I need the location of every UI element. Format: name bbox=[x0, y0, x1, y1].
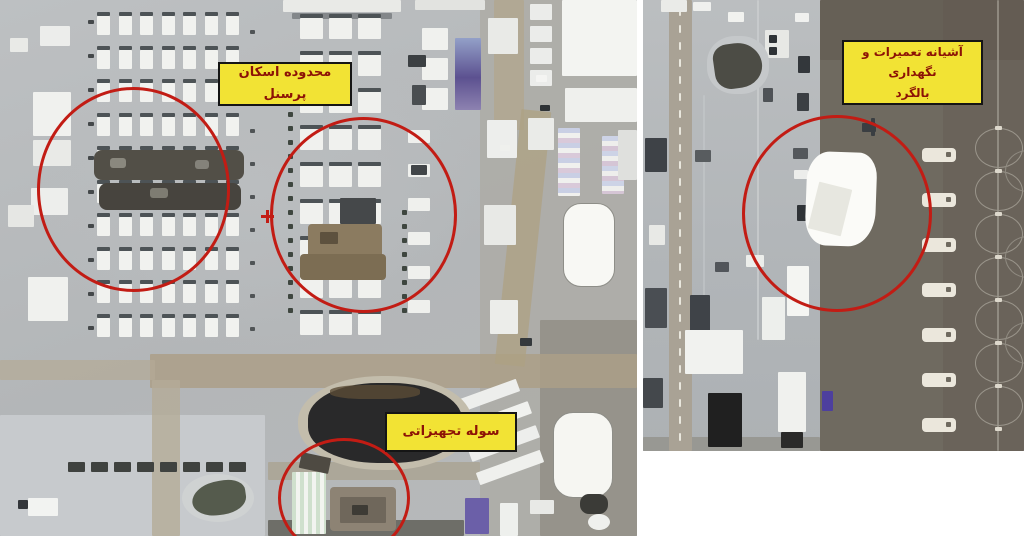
label-helicopter-hangar: آشیانه تعمیرات و نگهداری بالگرد bbox=[842, 40, 983, 105]
circle-personnel-tents bbox=[37, 87, 230, 292]
circle-equipment-shed bbox=[278, 438, 410, 536]
red-plus-mark bbox=[261, 210, 274, 223]
annotation-overlay: محدوده اسکان پرسنل سوله تجهیزاتی آشیانه … bbox=[0, 0, 1024, 536]
label-equipment-shed: سوله تجهیزاتی bbox=[385, 412, 517, 452]
circle-center-damage bbox=[270, 117, 457, 313]
annotated-satellite-collage: محدوده اسکان پرسنل سوله تجهیزاتی آشیانه … bbox=[0, 0, 1024, 536]
circle-hangar bbox=[742, 115, 932, 312]
label-personnel-area: محدوده اسکان پرسنل bbox=[218, 62, 352, 106]
